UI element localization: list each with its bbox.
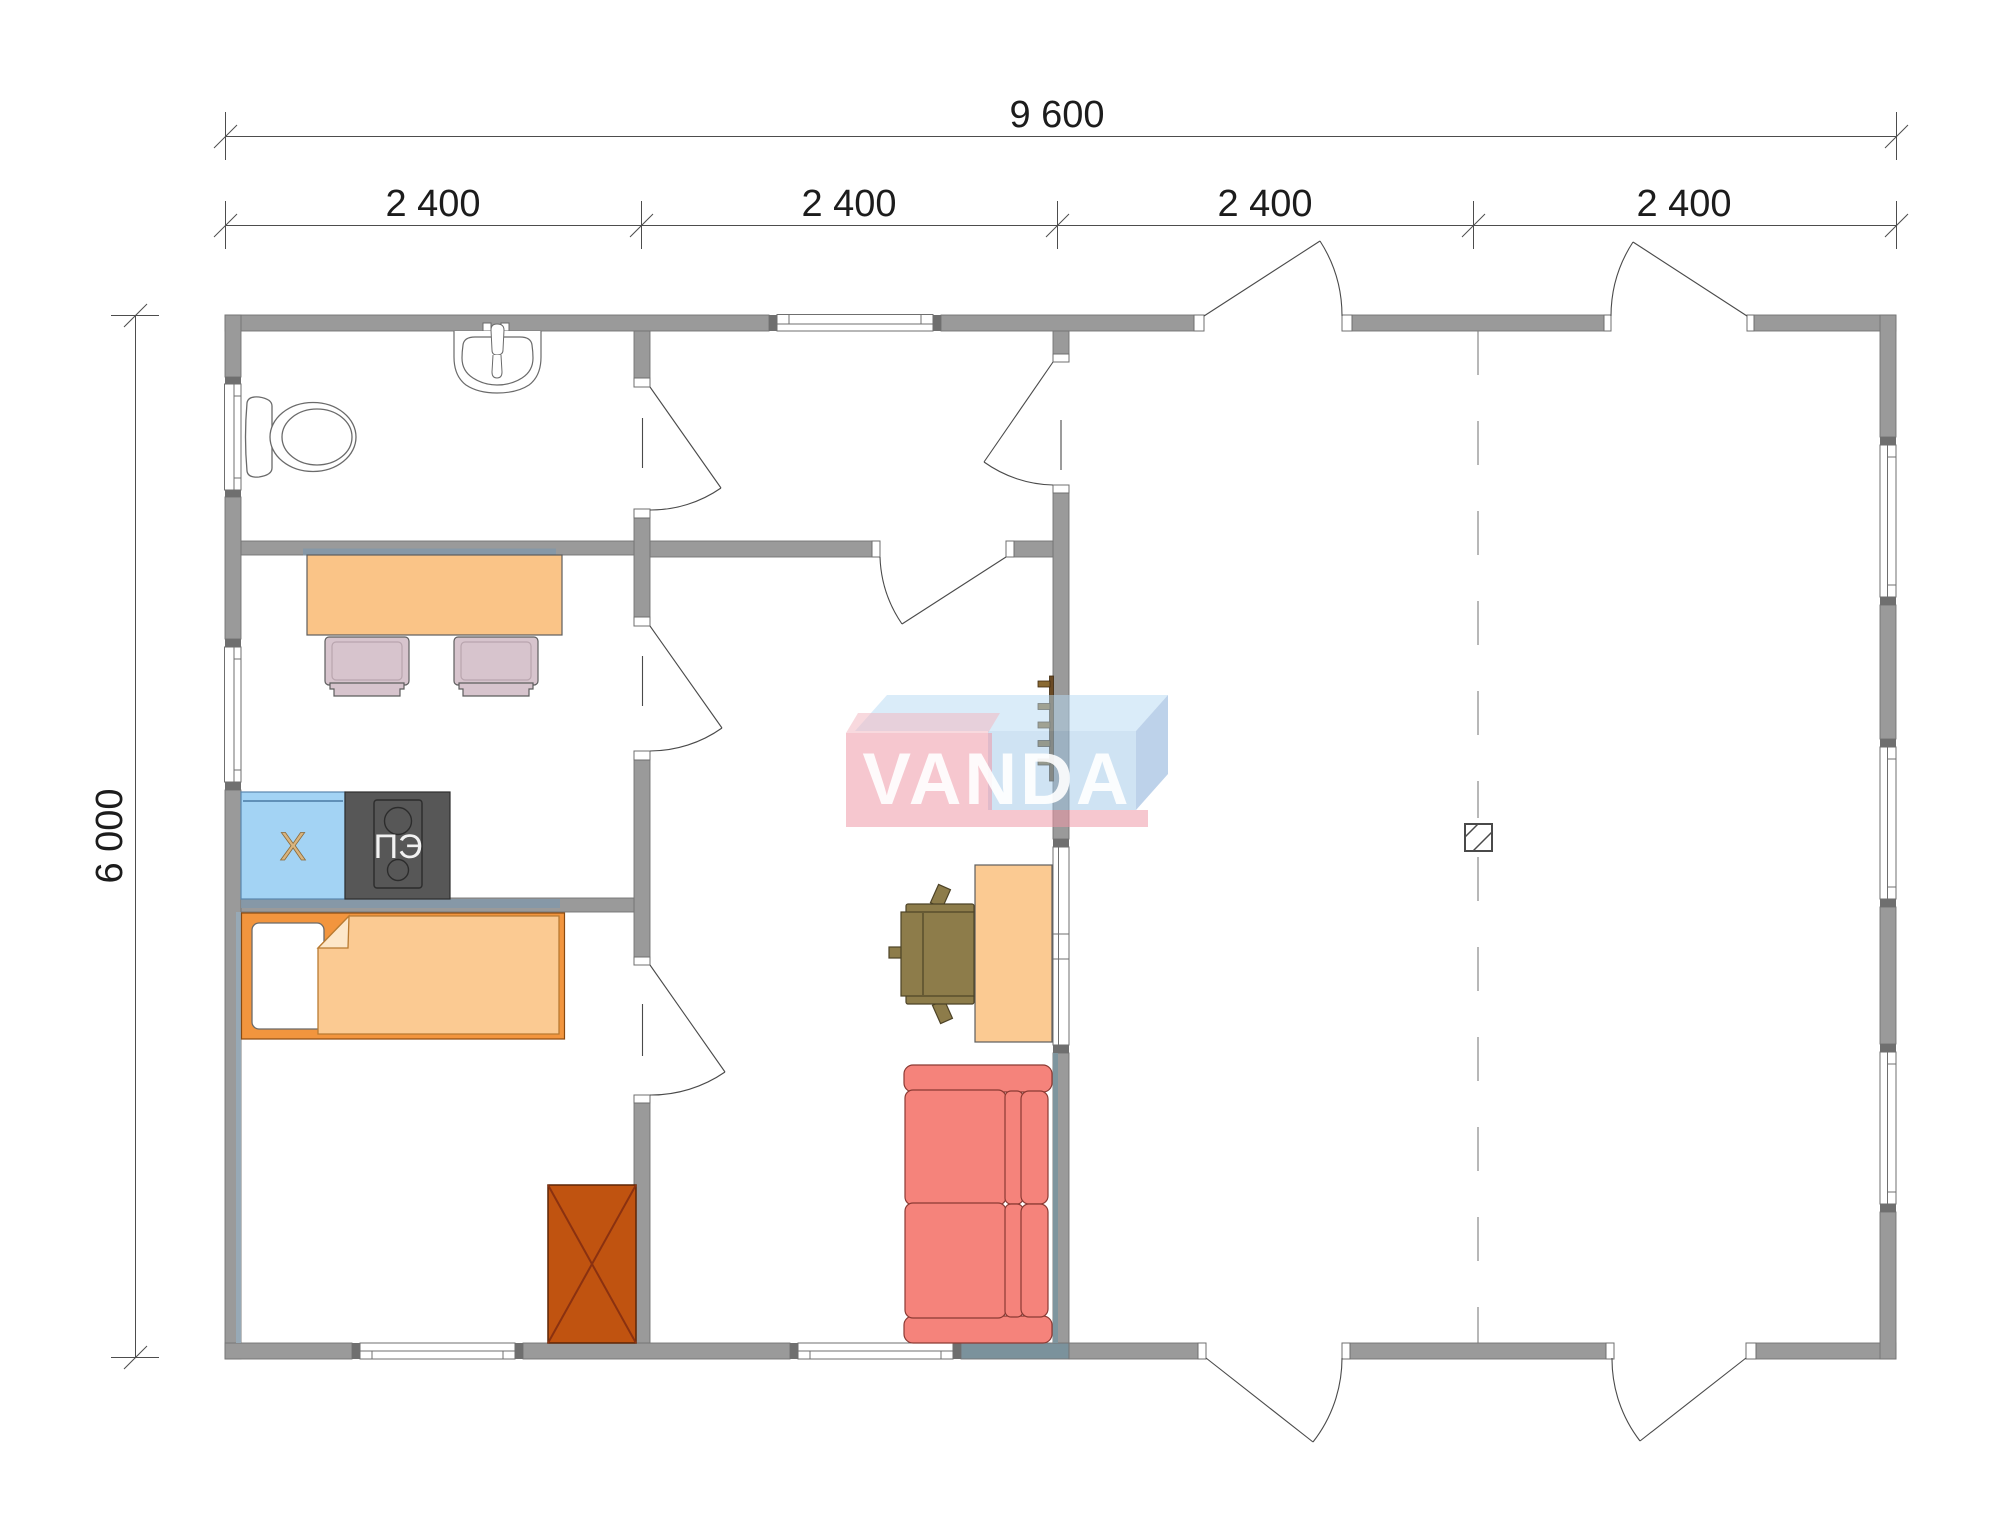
svg-text:2 400: 2 400 xyxy=(1217,183,1312,225)
svg-text:6 000: 6 000 xyxy=(89,788,131,883)
svg-text:ПЭ: ПЭ xyxy=(374,828,423,866)
svg-text:X: X xyxy=(280,825,307,869)
svg-text:2 400: 2 400 xyxy=(801,183,896,225)
svg-text:VANDA: VANDA xyxy=(862,739,1131,820)
svg-text:2 400: 2 400 xyxy=(1636,183,1731,225)
svg-text:2 400: 2 400 xyxy=(385,183,480,225)
svg-text:9 600: 9 600 xyxy=(1009,94,1104,136)
